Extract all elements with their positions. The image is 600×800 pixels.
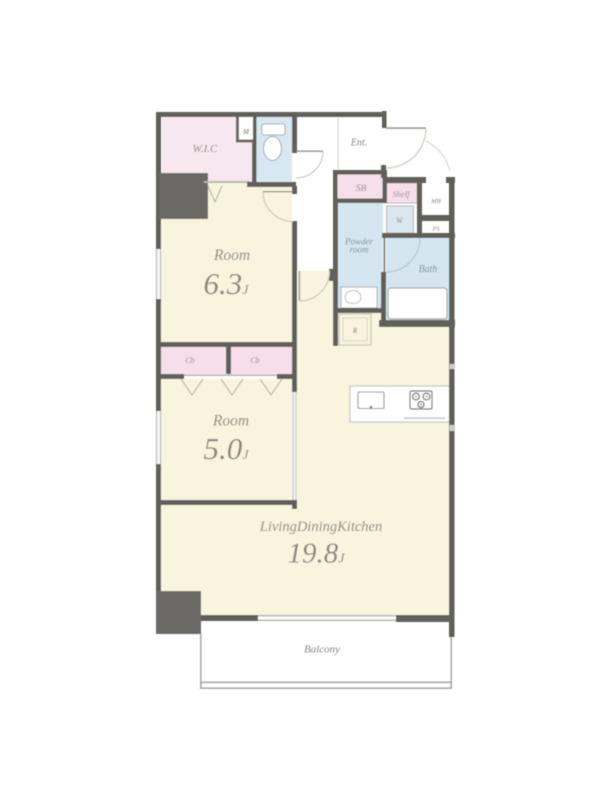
svg-text:M: M [242, 128, 250, 136]
svg-text:Shelf: Shelf [393, 189, 412, 199]
svg-text:Cb: Cb [250, 356, 259, 365]
svg-text:SB: SB [356, 184, 367, 194]
svg-text:19.8J: 19.8J [288, 538, 346, 570]
svg-text:W.I.C: W.I.C [193, 143, 218, 155]
svg-text:Bath: Bath [419, 264, 438, 275]
svg-text:Room: Room [213, 247, 250, 264]
svg-text:Room: Room [212, 413, 249, 430]
svg-text:Ent.: Ent. [350, 138, 367, 149]
svg-text:LivingDiningKitchen: LivingDiningKitchen [259, 519, 382, 535]
svg-text:R: R [352, 327, 358, 335]
svg-text:Balcony: Balcony [304, 644, 340, 656]
svg-text:Cb: Cb [185, 356, 194, 365]
svg-text:MB: MB [430, 198, 440, 205]
svg-text:PS: PS [431, 226, 440, 233]
svg-text:room: room [350, 245, 369, 255]
